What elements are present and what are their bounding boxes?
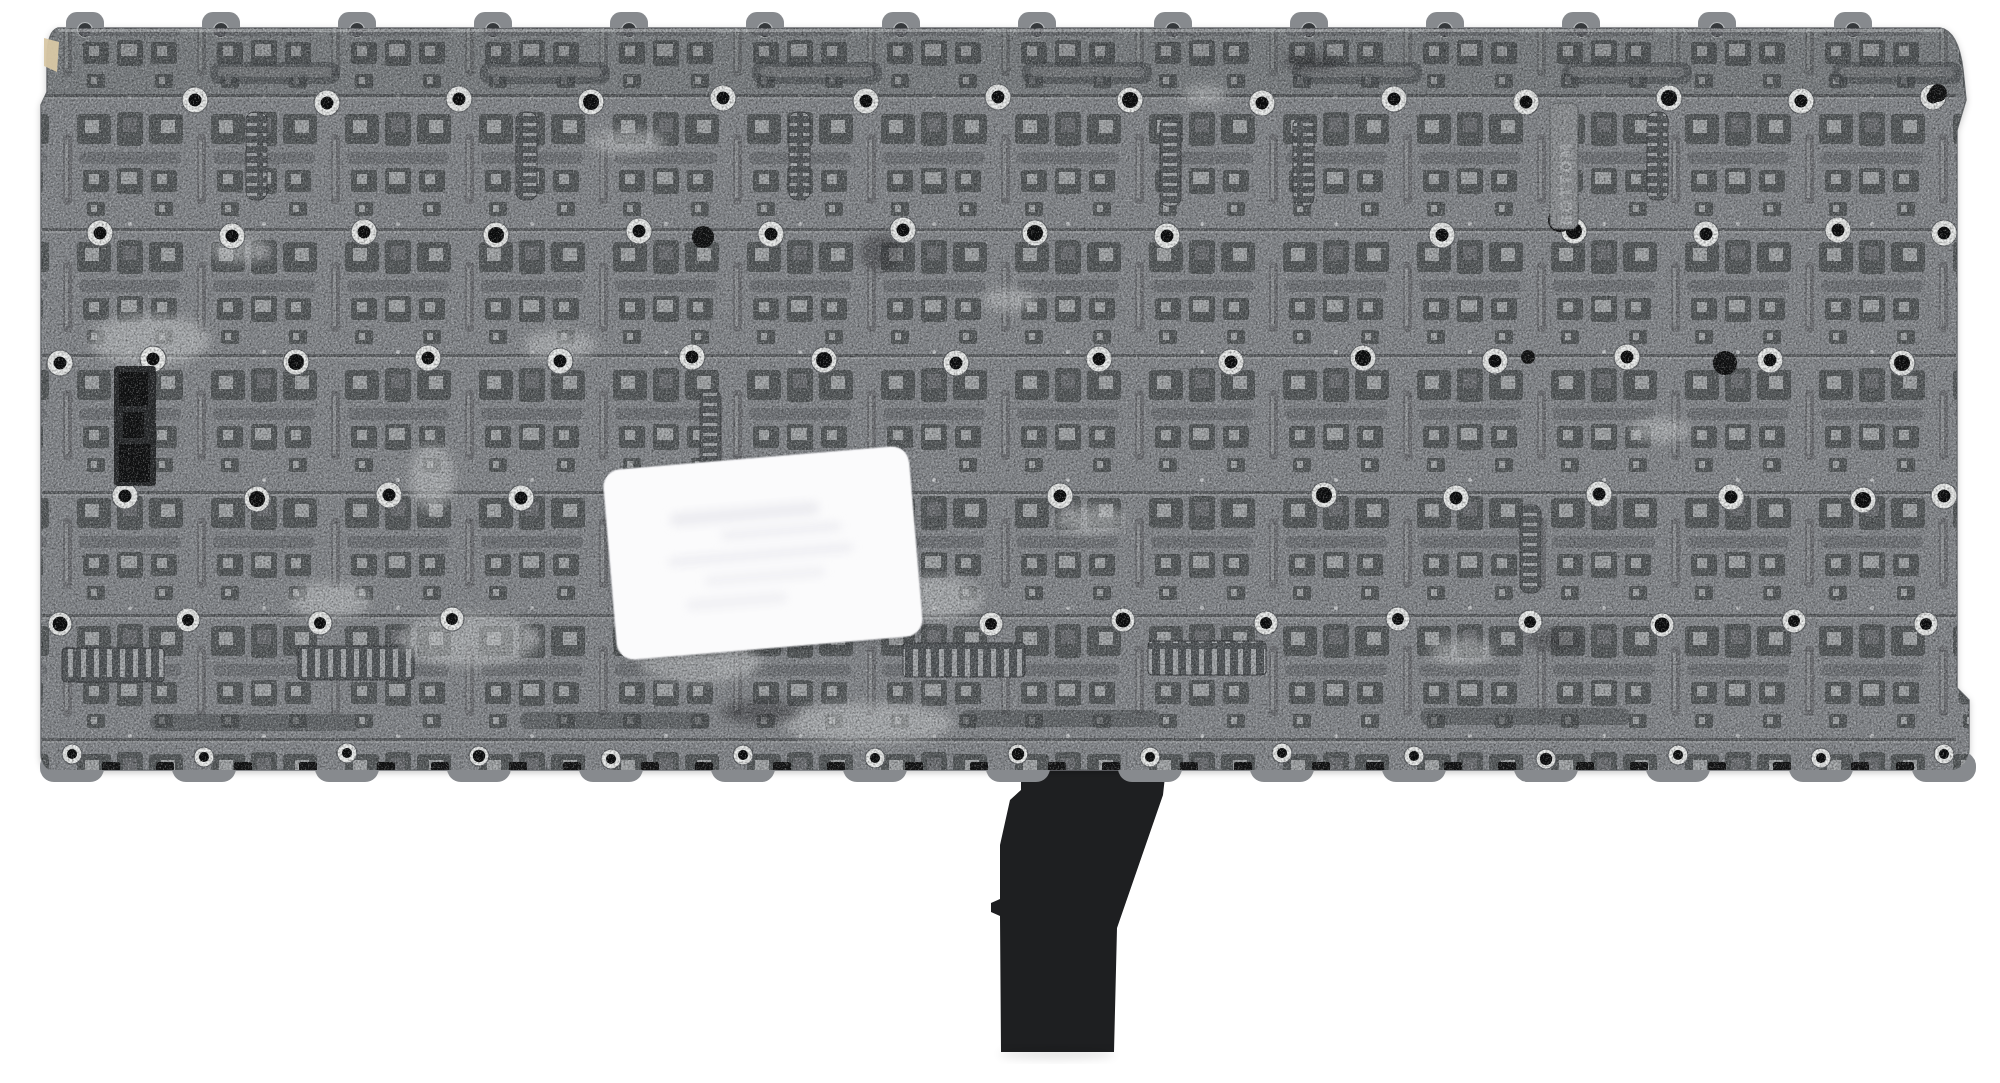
photo-canvas: BOTTOM — [0, 0, 2000, 1083]
product-photo: BOTTOM — [0, 0, 2000, 1083]
white-sticker-label — [603, 446, 924, 661]
plate-surface: BOTTOM — [24, 28, 1992, 771]
grain-light-layer — [41, 28, 1969, 770]
ribbon-cable-shape — [991, 758, 1167, 1052]
tape-fragment — [44, 38, 59, 72]
foot-mark — [1974, 762, 1992, 771]
ribbon-cable — [991, 758, 1167, 1059]
keyboard-backplate: BOTTOM — [24, 12, 1992, 782]
foot-mark — [24, 762, 42, 771]
cable-shadow — [999, 1049, 1115, 1059]
